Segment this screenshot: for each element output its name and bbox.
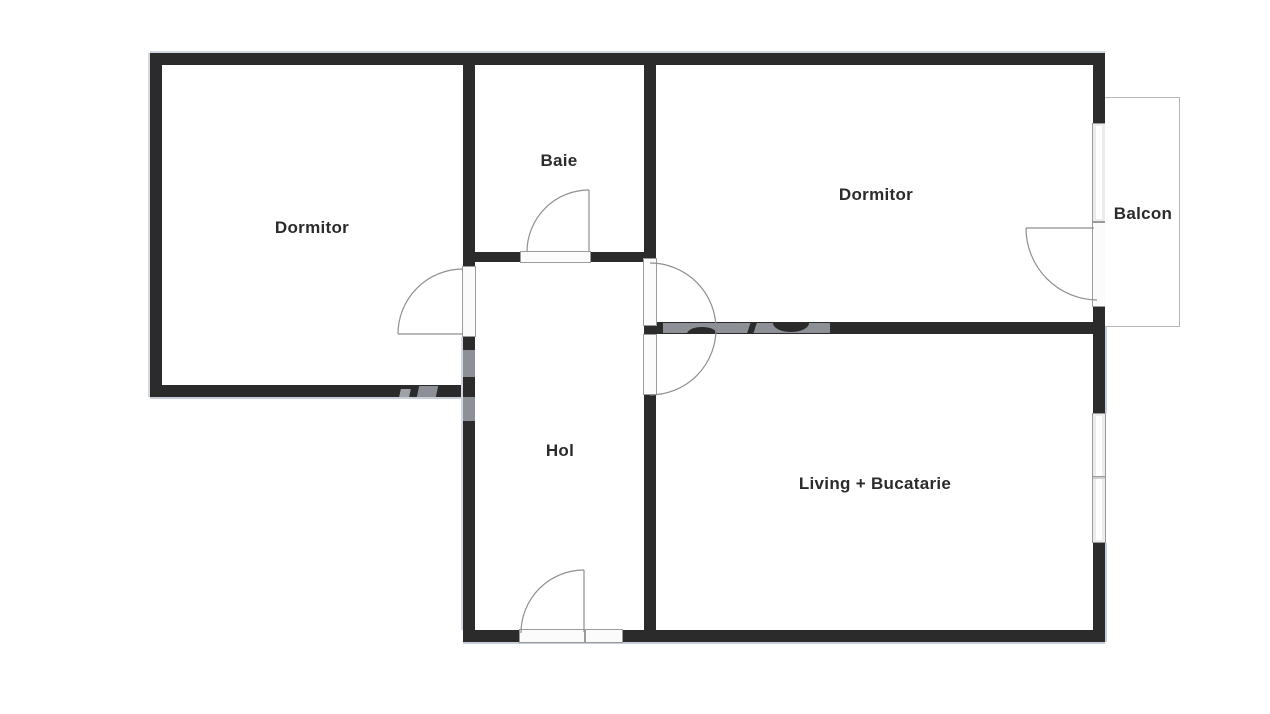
window-pane xyxy=(1096,126,1102,219)
room-label-dormitor-left: Dormitor xyxy=(275,218,349,238)
wall-center-right-upper xyxy=(644,65,656,258)
wall-right-exterior-upper xyxy=(1093,53,1105,123)
watermark-artifact xyxy=(773,323,809,332)
room-label-hol: Hol xyxy=(546,441,574,461)
door-opening-hol-living xyxy=(643,334,657,395)
watermark-artifact xyxy=(463,350,475,377)
wall-center-right-lower xyxy=(644,395,656,642)
wall-right-exterior-lower xyxy=(1093,543,1105,642)
wall-left-exterior xyxy=(150,53,162,397)
door-swing-dormitor-left xyxy=(398,269,463,334)
door-swings-layer xyxy=(0,0,1270,714)
door-opening-hol-dormitor-right xyxy=(643,258,657,326)
door-opening-entrance-bottom xyxy=(519,629,623,643)
room-label-dormitor-right: Dormitor xyxy=(839,185,913,205)
door-panel-divider xyxy=(584,630,586,642)
wall-center-left-upper xyxy=(463,65,475,266)
window-dormitor-right xyxy=(1092,123,1106,222)
wall-center-left-lower xyxy=(463,337,475,630)
watermark-artifact xyxy=(399,389,411,397)
door-opening-dormitor-left-hol xyxy=(462,266,476,337)
room-label-living: Living + Bucatarie xyxy=(799,474,951,494)
room-label-baie: Baie xyxy=(540,151,577,171)
door-swing-balcony xyxy=(1026,228,1097,300)
watermark-artifact xyxy=(463,397,475,421)
window-divider xyxy=(1093,476,1105,479)
wall-right-exterior-middle xyxy=(1093,307,1105,413)
watermark-artifact xyxy=(687,327,717,333)
door-swing-entrance xyxy=(521,570,584,633)
room-label-balcon: Balcon xyxy=(1114,204,1172,224)
door-swing-baie xyxy=(527,190,589,252)
watermark-artifact xyxy=(747,323,758,333)
window-living xyxy=(1092,413,1106,543)
wall-top-exterior xyxy=(150,53,1105,65)
door-opening-balcony xyxy=(1092,222,1106,307)
watermark-artifact xyxy=(663,323,830,333)
watermark-artifact xyxy=(417,386,438,397)
floorplan-canvas: Dormitor Baie Dormitor Balcon Hol Living… xyxy=(0,0,1270,714)
door-opening-baie xyxy=(520,251,591,263)
